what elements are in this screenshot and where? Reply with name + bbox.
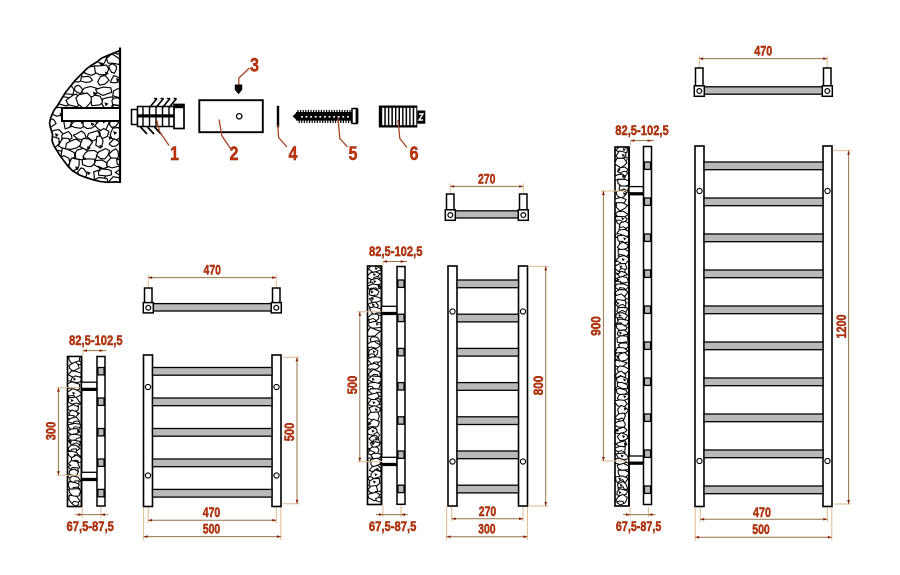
svg-text:67,5-87,5: 67,5-87,5	[369, 519, 417, 534]
svg-text:470: 470	[203, 505, 221, 520]
svg-text:1: 1	[170, 143, 179, 165]
svg-text:470: 470	[753, 505, 771, 520]
svg-text:800: 800	[531, 376, 546, 396]
svg-text:300: 300	[44, 422, 59, 441]
svg-text:6: 6	[410, 143, 419, 165]
svg-text:1200: 1200	[834, 315, 849, 339]
svg-text:300: 300	[478, 522, 496, 537]
svg-text:470: 470	[204, 263, 222, 278]
svg-text:500: 500	[282, 423, 297, 442]
svg-text:82,5-102,5: 82,5-102,5	[69, 333, 123, 348]
svg-text:4: 4	[289, 143, 298, 165]
svg-text:500: 500	[203, 522, 221, 537]
svg-text:270: 270	[479, 504, 497, 519]
svg-text:82,5-102,5: 82,5-102,5	[369, 244, 423, 259]
svg-text:500: 500	[752, 522, 770, 537]
svg-text:67,5-87,5: 67,5-87,5	[66, 519, 114, 534]
svg-text:270: 270	[478, 171, 496, 186]
svg-text:3: 3	[250, 55, 259, 77]
svg-text:82,5-102,5: 82,5-102,5	[615, 123, 669, 138]
svg-text:500: 500	[345, 376, 360, 395]
svg-text:900: 900	[589, 316, 604, 336]
svg-text:470: 470	[754, 43, 772, 58]
svg-text:67,5-87,5: 67,5-87,5	[616, 519, 662, 534]
svg-text:2: 2	[230, 143, 239, 165]
svg-text:5: 5	[349, 143, 358, 165]
